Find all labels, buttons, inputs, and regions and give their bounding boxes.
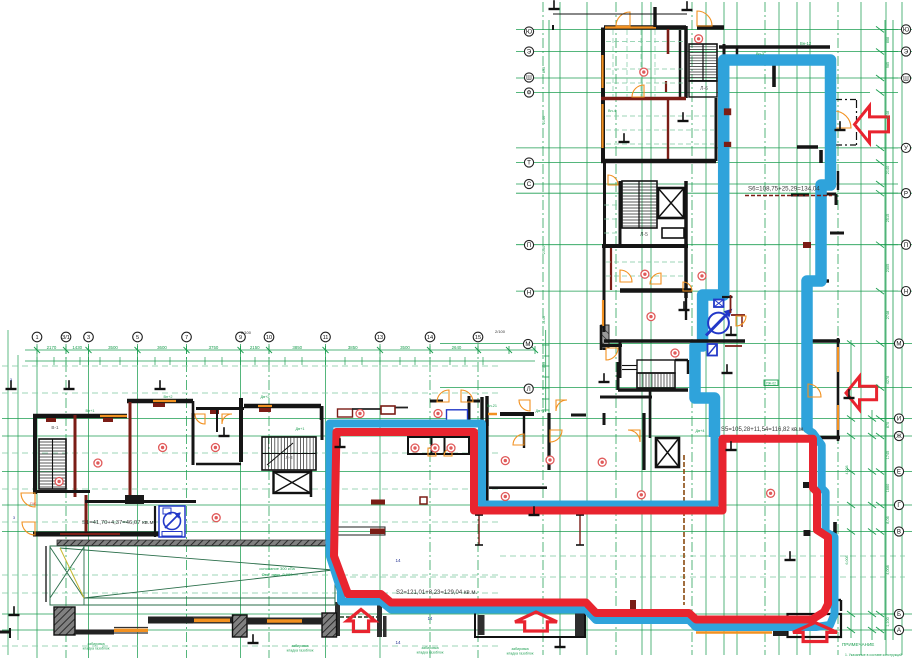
svg-text:1745: 1745 — [886, 451, 890, 459]
svg-text:2515: 2515 — [886, 214, 890, 222]
svg-text:В: В — [897, 529, 901, 536]
svg-text:ПЖ: ПЖ — [30, 502, 37, 506]
svg-text:14: 14 — [427, 335, 433, 341]
svg-text:кладка газоблок: кладка газоблок — [83, 647, 110, 651]
svg-text:Вн+1: Вн+1 — [86, 409, 95, 413]
svg-text:Л-5: Л-5 — [640, 232, 648, 238]
svg-text:кладка газоблок: кладка газоблок — [417, 651, 444, 655]
svg-text:Л-6: Л-6 — [700, 86, 708, 92]
svg-text:Вн-4: Вн-4 — [608, 109, 616, 113]
svg-text:2748: 2748 — [886, 111, 890, 119]
svg-text:Л: Л — [527, 386, 531, 393]
svg-text:Н: Н — [904, 288, 908, 295]
svg-text:3/1: 3/1 — [62, 335, 70, 341]
svg-text:13: 13 — [377, 335, 383, 341]
svg-text:3500: 3500 — [400, 345, 410, 350]
svg-text:М: М — [525, 341, 530, 348]
svg-text:Т: Т — [527, 160, 531, 167]
svg-text:2640: 2640 — [452, 345, 462, 350]
svg-text:Ш: Ш — [526, 75, 532, 82]
svg-text:14: 14 — [428, 616, 433, 621]
svg-text:7: 7 — [185, 335, 188, 341]
svg-text:ПЖ-02: ПЖ-02 — [766, 382, 776, 386]
svg-text:Э: Э — [904, 49, 909, 56]
svg-text:2150: 2150 — [250, 345, 260, 350]
svg-text:1. Указанные в составе констру: 1. Указанные в составе конструкций — [845, 653, 902, 657]
svg-text:забировка: забировка — [421, 646, 438, 650]
svg-text:14: 14 — [395, 640, 401, 645]
svg-text:4,008: 4,008 — [845, 466, 849, 475]
svg-text:17Па: 17Па — [65, 566, 75, 571]
svg-text:2/100: 2/100 — [495, 329, 506, 334]
svg-text:1660: 1660 — [886, 484, 890, 492]
svg-text:2140: 2140 — [886, 166, 890, 174]
svg-text:кладка газоблок: кладка газоблок — [287, 649, 314, 653]
svg-text:С: С — [527, 181, 532, 188]
svg-text:Вн-3: Вн-3 — [756, 52, 764, 56]
svg-text:Дв+4: Дв+4 — [536, 409, 545, 413]
svg-text:забировка: забировка — [511, 647, 528, 651]
svg-text:1: 1 — [35, 335, 38, 341]
svg-text:Вп-21: Вп-21 — [487, 404, 497, 408]
svg-text:кладка газоблок: кладка газоблок — [507, 652, 534, 656]
svg-text:3: 3 — [87, 335, 90, 341]
svg-text:ПРИМЕЧАНИЕ: ПРИМЕЧАНИЕ — [842, 642, 874, 647]
svg-text:868: 868 — [886, 37, 890, 43]
svg-text:2748: 2748 — [886, 311, 890, 319]
svg-text:Р: Р — [904, 190, 908, 197]
svg-text:895: 895 — [542, 67, 546, 73]
svg-text:Вн-12: Вн-12 — [800, 41, 812, 46]
svg-text:2150: 2150 — [542, 246, 546, 254]
svg-text:10: 10 — [266, 335, 272, 341]
svg-text:П: П — [527, 242, 531, 249]
svg-text:Э: Э — [527, 49, 532, 56]
svg-text:Б: Б — [897, 611, 901, 618]
svg-text:2140: 2140 — [542, 116, 546, 124]
svg-text:М: М — [896, 341, 901, 348]
svg-text:У: У — [904, 145, 908, 152]
svg-text:Ю: Ю — [526, 29, 532, 36]
svg-text:Ш: Ш — [903, 76, 909, 83]
svg-text:3600: 3600 — [157, 345, 167, 350]
svg-text:Отм. низа -2,980: Отм. низа -2,980 — [262, 572, 294, 577]
svg-text:3850: 3850 — [292, 345, 302, 350]
svg-text:Е: Е — [897, 469, 901, 476]
svg-text:И: И — [897, 416, 901, 423]
svg-text:S5=105,28+11,54=116,82 кв.м.: S5=105,28+11,54=116,82 кв.м. — [721, 427, 805, 433]
svg-text:1430: 1430 — [72, 345, 82, 350]
svg-text:П: П — [904, 242, 908, 249]
svg-text:Дв+2: Дв+2 — [261, 395, 270, 399]
svg-text:4278: 4278 — [886, 376, 890, 384]
svg-text:основание 300 кПа: основание 300 кПа — [259, 566, 295, 571]
svg-text:забировка: забировка — [87, 642, 104, 646]
svg-text:4,008: 4,008 — [886, 565, 890, 575]
svg-text:Дв+1: Дв+1 — [296, 427, 305, 431]
svg-text:Н: Н — [527, 290, 531, 297]
svg-text:11: 11 — [323, 335, 329, 341]
svg-text:3750: 3750 — [209, 345, 219, 350]
svg-text:8,06: 8,06 — [886, 516, 890, 523]
svg-text:6,008: 6,008 — [845, 556, 849, 565]
svg-text:870: 870 — [886, 422, 890, 428]
svg-text:1140: 1140 — [542, 316, 546, 324]
svg-text:Дв+4: Дв+4 — [696, 429, 705, 433]
svg-text:забировка: забировка — [291, 644, 308, 648]
svg-text:9: 9 — [239, 335, 242, 341]
svg-text:Вн+2: Вн+2 — [164, 395, 173, 399]
svg-text:505: 505 — [542, 362, 546, 368]
svg-text:S1=41,70+4,37=46,07 кв.м.: S1=41,70+4,37=46,07 кв.м. — [82, 520, 156, 526]
svg-text:3500: 3500 — [108, 345, 118, 350]
svg-text:985: 985 — [886, 62, 890, 68]
svg-text:Л-3: Л-3 — [285, 455, 293, 460]
svg-text:15: 15 — [475, 335, 481, 341]
svg-text:2305: 2305 — [886, 264, 890, 272]
svg-text:S6=108,75+25,29=134,04: S6=108,75+25,29=134,04 — [748, 186, 820, 193]
svg-text:В-1: В-1 — [51, 425, 59, 430]
svg-text:Ф: Ф — [527, 90, 532, 97]
svg-text:14: 14 — [395, 558, 401, 563]
svg-text:5: 5 — [136, 335, 139, 341]
svg-text:2/100: 2/100 — [241, 330, 252, 335]
svg-text:S2=121,01+8,23=129,04 кв.м.: S2=121,01+8,23=129,04 кв.м. — [396, 590, 478, 596]
svg-text:1,100: 1,100 — [886, 617, 890, 627]
svg-text:Ж: Ж — [896, 433, 902, 440]
svg-text:3850: 3850 — [348, 345, 358, 350]
svg-text:2170: 2170 — [47, 345, 57, 350]
svg-text:Ю: Ю — [903, 27, 909, 34]
